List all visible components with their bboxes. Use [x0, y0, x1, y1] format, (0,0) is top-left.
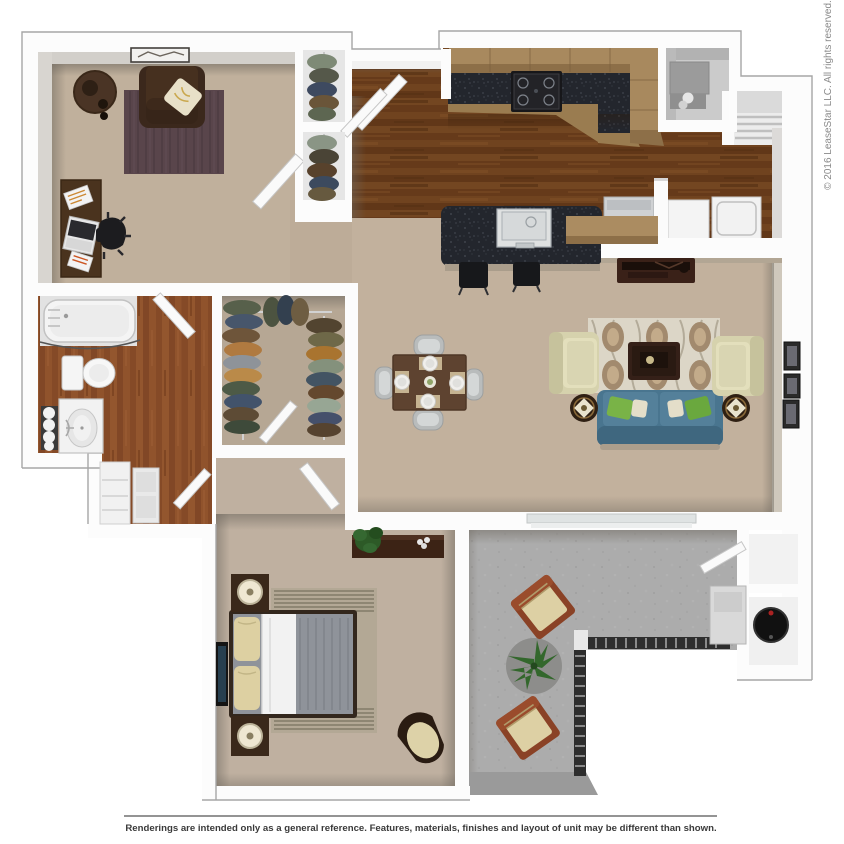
svg-text:Renderings are intended only a: Renderings are intended only as a genera… [125, 823, 716, 834]
svg-text:© 2016 LeaseStar LLC. All righ: © 2016 LeaseStar LLC. All rights reserve… [823, 0, 834, 190]
